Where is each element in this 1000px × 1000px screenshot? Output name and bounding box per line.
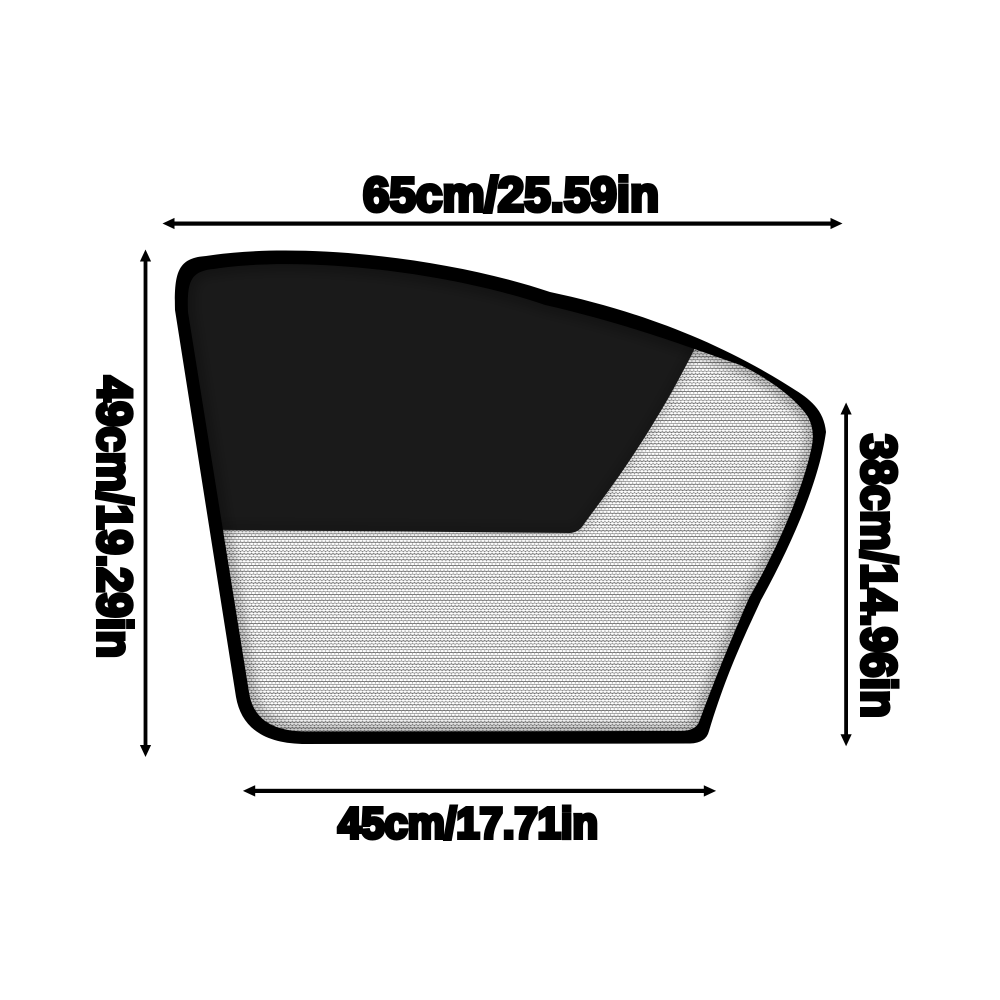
- svg-text:49cm/19.29in: 49cm/19.29in: [87, 376, 140, 658]
- svg-text:45cm/17.71in: 45cm/17.71in: [338, 799, 598, 848]
- svg-text:38cm/14.96in: 38cm/14.96in: [851, 434, 905, 718]
- svg-text:65cm/25.59in: 65cm/25.59in: [363, 169, 659, 222]
